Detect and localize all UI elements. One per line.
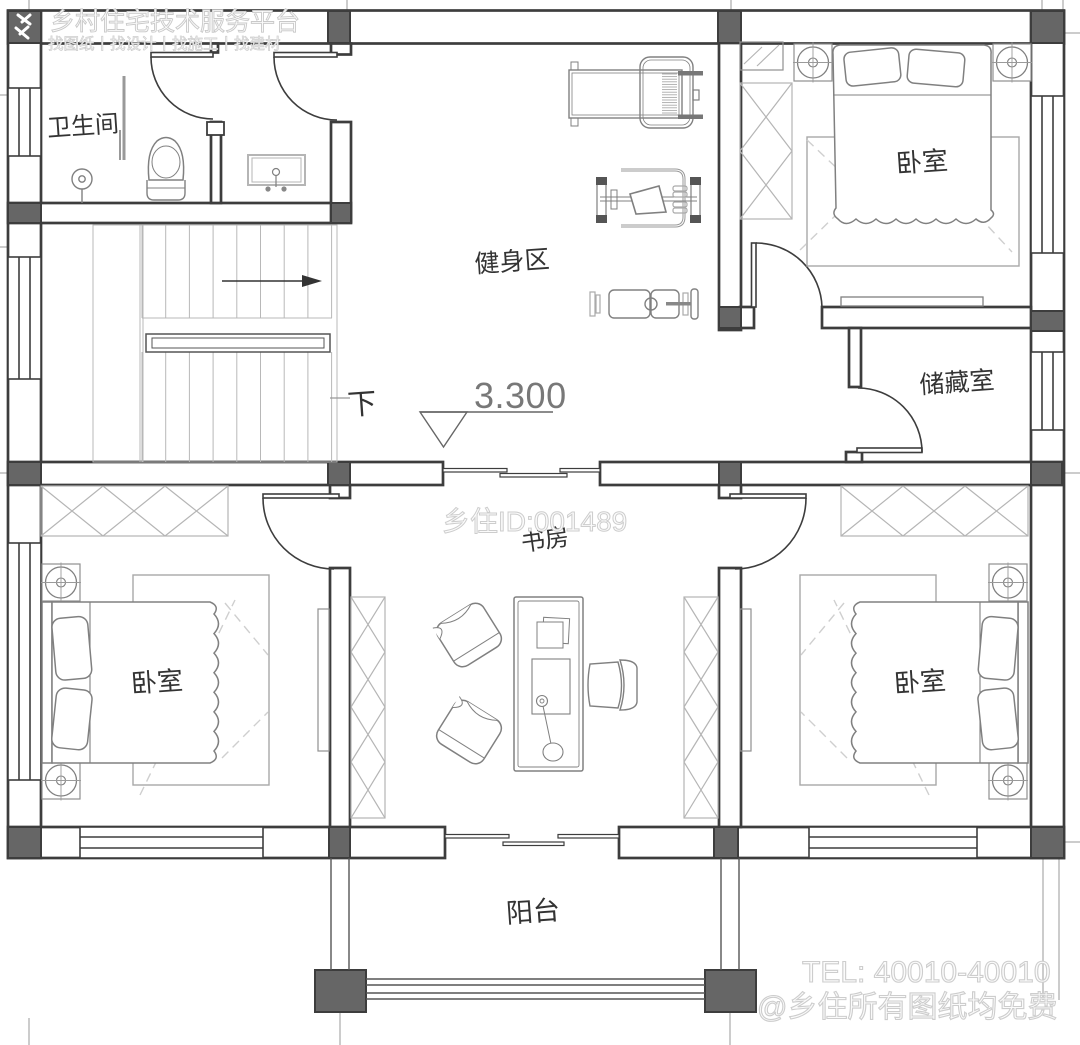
svg-text:健身区: 健身区 <box>474 245 551 278</box>
svg-text:@乡住所有图纸均免费: @乡住所有图纸均免费 <box>757 991 1057 1024</box>
svg-text:阳台: 阳台 <box>505 895 561 929</box>
svg-text:储藏室: 储藏室 <box>919 366 996 399</box>
svg-text:3.300: 3.300 <box>474 375 567 416</box>
svg-text:卫生间: 卫生间 <box>46 111 120 143</box>
svg-text:乡村住宅技术服务平台: 乡村住宅技术服务平台 <box>50 8 300 36</box>
svg-text:卧室: 卧室 <box>893 665 947 699</box>
svg-text:下: 下 <box>346 388 377 422</box>
svg-text:TEL: 40010-40010: TEL: 40010-40010 <box>802 956 1051 989</box>
svg-text:找图纸丨找设计丨找施工丨找建材: 找图纸丨找设计丨找施工丨找建材 <box>48 35 281 53</box>
svg-text:卧室: 卧室 <box>895 145 949 179</box>
svg-text:卧室: 卧室 <box>130 665 184 699</box>
svg-text:乡住ID:001489: 乡住ID:001489 <box>442 506 627 537</box>
